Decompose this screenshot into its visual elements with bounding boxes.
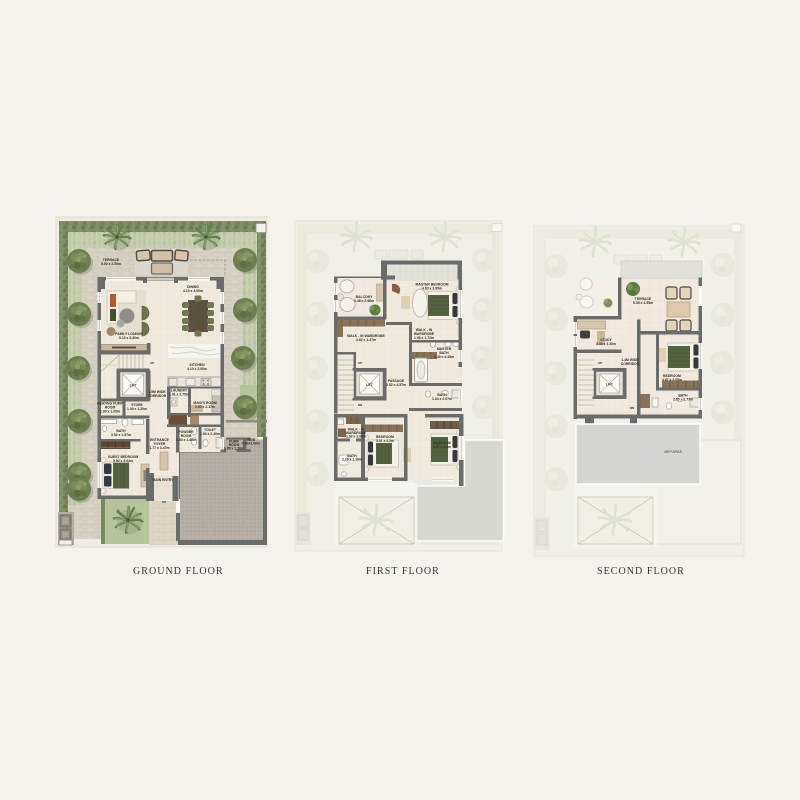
svg-text:3.48 x 2.98m: 3.48 x 2.98m xyxy=(354,299,374,303)
svg-text:1.77 x 3.47m: 1.77 x 3.47m xyxy=(150,446,170,450)
svg-text:5.00 x 2.50m: 5.00 x 2.50m xyxy=(101,262,121,266)
svg-text:MAIN ENTRY: MAIN ENTRY xyxy=(153,478,175,482)
svg-text:MEP AREA: MEP AREA xyxy=(664,450,682,454)
svg-text:5.08 x 4.35m: 5.08 x 4.35m xyxy=(633,301,653,305)
svg-text:CORRIDOR: CORRIDOR xyxy=(621,362,640,366)
svg-text:LIFT: LIFT xyxy=(606,383,613,387)
svg-text:3.67 x 3.05m: 3.67 x 3.05m xyxy=(662,378,682,382)
svg-text:CORRIDOR: CORRIDOR xyxy=(148,394,167,398)
svg-text:4.10 x 4.00m: 4.10 x 4.00m xyxy=(183,289,203,293)
svg-text:1.41 x 2.75m: 1.41 x 2.75m xyxy=(169,393,189,397)
svg-text:4.10 x 3.00m: 4.10 x 3.00m xyxy=(187,367,207,371)
svg-text:UP: UP xyxy=(358,361,362,365)
svg-text:1.92 x 1.00m: 1.92 x 1.00m xyxy=(346,435,366,439)
svg-text:3.52 x 1.57m: 3.52 x 1.57m xyxy=(111,433,131,437)
svg-text:3.40 x 4.45m: 3.40 x 4.45m xyxy=(434,355,454,359)
svg-text:1.80 x 1.20m: 1.80 x 1.20m xyxy=(224,447,244,451)
svg-text:3.62 x 1.47m: 3.62 x 1.47m xyxy=(356,338,376,342)
svg-text:3.52 x 3.04m: 3.52 x 3.04m xyxy=(113,459,133,463)
svg-text:1.34 x 2.07m: 1.34 x 2.07m xyxy=(432,397,452,401)
svg-text:2.52 x 2.17m: 2.52 x 2.17m xyxy=(195,405,215,409)
svg-text:3.30 x 2.30m: 3.30 x 2.30m xyxy=(596,342,616,346)
svg-text:2.95 x 1.77m: 2.95 x 1.77m xyxy=(673,398,693,402)
svg-text:3.41 x 4.2m: 3.41 x 4.2m xyxy=(376,439,394,443)
svg-text:2.20 x 1.10m: 2.20 x 1.10m xyxy=(342,458,362,462)
svg-text:5.10 x 5.30m: 5.10 x 5.30m xyxy=(119,336,139,340)
svg-text:DN: DN xyxy=(630,406,634,410)
svg-text:3.37 x 3.4m: 3.37 x 3.4m xyxy=(433,445,451,449)
svg-text:1.00 x 1.05m: 1.00 x 1.05m xyxy=(100,410,120,414)
svg-text:1.60 x 1.40m: 1.60 x 1.40m xyxy=(176,438,196,442)
svg-text:2.52 x 4.57m: 2.52 x 4.57m xyxy=(386,383,406,387)
svg-text:LIFT: LIFT xyxy=(130,384,137,388)
svg-text:1.98 x 1.72m: 1.98 x 1.72m xyxy=(414,336,434,340)
svg-text:1.00 x 1.20m: 1.00 x 1.20m xyxy=(127,407,147,411)
svg-text:DN: DN xyxy=(358,403,362,407)
svg-text:UP: UP xyxy=(598,361,602,365)
svg-text:4.63 x 3.95m: 4.63 x 3.95m xyxy=(422,287,442,291)
svg-text:0.80x1.00m: 0.80x1.00m xyxy=(242,442,260,446)
svg-text:UP: UP xyxy=(150,361,154,365)
svg-text:UP: UP xyxy=(162,500,166,504)
svg-text:1.00 x 2.40m: 1.00 x 2.40m xyxy=(200,432,220,436)
svg-text:LIFT: LIFT xyxy=(366,383,373,387)
